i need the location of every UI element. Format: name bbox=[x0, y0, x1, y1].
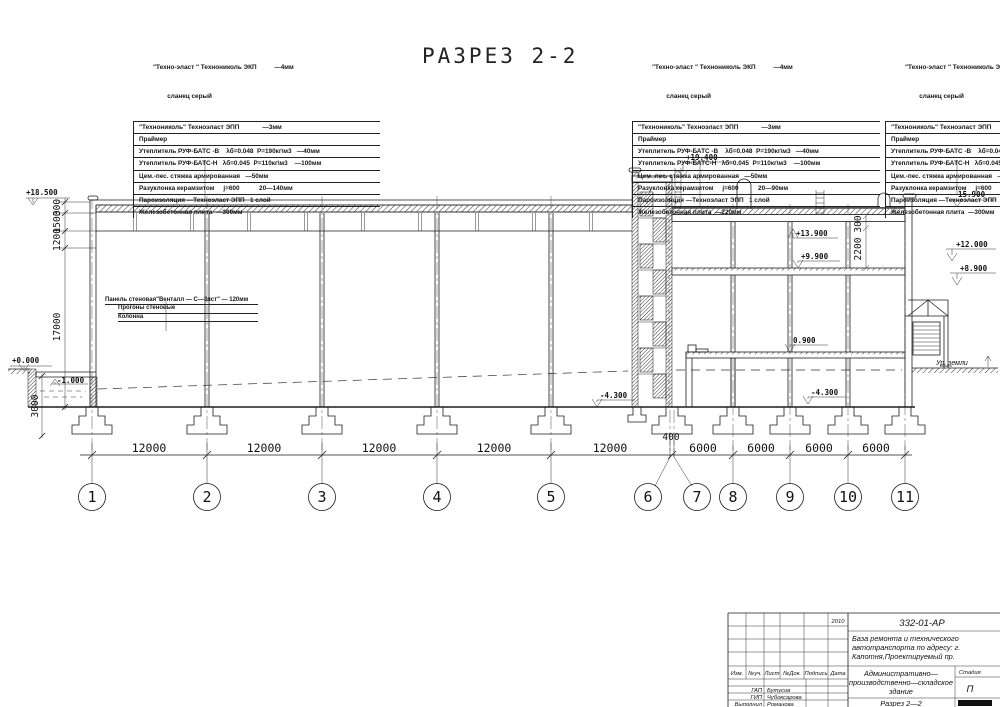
spec-row: Железобетонная плита —300мм bbox=[134, 207, 380, 218]
axis-bubble-11: 11 bbox=[892, 484, 919, 511]
dimension-chain-left: 300 1500 1200 17000 3000 bbox=[30, 198, 96, 439]
spec-row: Цем.-пес. стяжка армированная —50мм bbox=[633, 171, 880, 183]
project-desc-line2: автотранспорта по адресу: г. bbox=[852, 643, 960, 652]
spec-row: Утеплитель РУФ-БАТС -В λб=0.048 Р=190кг\… bbox=[886, 146, 1000, 158]
dim-1200: 1200 bbox=[52, 228, 63, 251]
spec-row: Утеплитель РУФ-БАТС-Н λб=0.045 Р=110кг\м… bbox=[886, 158, 1000, 170]
spec-row: Разуклонка керамзитом j=600 20—140мм bbox=[134, 183, 380, 195]
svg-text:+9.900: +9.900 bbox=[801, 252, 829, 261]
svg-text:+12.000: +12.000 bbox=[956, 240, 988, 249]
spec-row: сланец серый bbox=[905, 92, 1000, 102]
callout-line: Колонна bbox=[118, 314, 258, 322]
project-desc-line1: База ремонта и технического bbox=[852, 634, 959, 643]
dim-12000-2: 12000 bbox=[247, 441, 282, 455]
foundations bbox=[72, 407, 925, 434]
axis-bubble-7: 7 bbox=[684, 484, 711, 511]
stair-flights bbox=[638, 192, 666, 398]
right-columns bbox=[731, 222, 850, 407]
project-desc-line3: Капотня,Проектируемый пр. bbox=[852, 652, 955, 661]
level-mark-13900: +13.900 bbox=[788, 229, 838, 238]
spec-row: Железобетонная плита —220мм bbox=[633, 207, 880, 218]
spec-row: Праймер bbox=[886, 134, 1000, 146]
spec-row: Пароизоляция —Техноэласт ЭПП 1 слой bbox=[134, 195, 380, 207]
col-dok: №Док. bbox=[783, 671, 801, 677]
dim-6000-3: 6000 bbox=[805, 441, 833, 455]
axis-bubble-5: 5 bbox=[538, 484, 565, 511]
wall-panel-callout: Панель стеновая"Венталл — С—3пст" — 120м… bbox=[105, 297, 258, 322]
svg-text:-1.000: -1.000 bbox=[57, 376, 85, 385]
spec-row: Разуклонка керамзитом j=600 20—90мм bbox=[633, 183, 880, 195]
dim-17000: 17000 bbox=[52, 312, 63, 341]
spec-row: Цем.-пес. стяжка армированная —50мм bbox=[134, 171, 380, 183]
titleblock-year: 2010 bbox=[831, 619, 846, 625]
spec-row: Железобетонная плита —300мм bbox=[886, 207, 1000, 218]
spec-row: "Технониколь" Техноэласт ЭПП —3мм bbox=[886, 122, 1000, 134]
level-mark-minus4300-hall: -4.300 bbox=[592, 391, 635, 407]
building-name-line2: производственно—складское bbox=[849, 678, 953, 687]
dim-12000-4: 12000 bbox=[477, 441, 512, 455]
level-mark-18500: +18.500 bbox=[26, 188, 70, 205]
dim-3000: 3000 bbox=[30, 394, 41, 417]
titleblock-doc-number: 332-01-АР bbox=[899, 618, 945, 629]
spec-row: Праймер bbox=[633, 134, 880, 146]
spec-row: Пароизоляция —Техноэласт ЭПП 1 слой bbox=[886, 195, 1000, 207]
floor-curb bbox=[688, 345, 696, 352]
axis-bubble-10: 10 bbox=[835, 484, 862, 511]
spec-row: Цем.-пес. стяжка армированная —50мм bbox=[886, 171, 1000, 183]
col-uch: №уч. bbox=[748, 671, 762, 677]
svg-text:-4.300: -4.300 bbox=[811, 388, 839, 397]
spec-row: "Технониколь" Техноэласт ЭПП —3мм bbox=[134, 122, 380, 134]
roof-spec-table-middle: "Техно-эласт " Технониколь ЭКП —4мм слан… bbox=[632, 44, 880, 218]
col-data: Дата bbox=[829, 671, 846, 677]
basement-wall-left bbox=[686, 352, 692, 407]
dim-12000-1: 12000 bbox=[132, 441, 167, 455]
dim-6000-4: 6000 bbox=[862, 441, 890, 455]
parapet-cap-left bbox=[88, 196, 98, 200]
hall-floor-dashed bbox=[98, 371, 628, 389]
spec-row: сланец серый bbox=[153, 92, 380, 102]
svg-text:-4.300: -4.300 bbox=[600, 391, 628, 400]
ground-hatch-left bbox=[8, 369, 30, 374]
svg-text:10: 10 bbox=[839, 488, 857, 506]
name-gap: Бутусов bbox=[767, 688, 790, 694]
dim-400: 400 bbox=[662, 432, 679, 443]
ground-level-label: Ур. земли bbox=[935, 356, 991, 367]
spec-row: Праймер bbox=[134, 134, 380, 146]
spec-row: "Техно-эласт " Технониколь ЭКП —4мм bbox=[905, 63, 1000, 73]
roof-spec-table-right: "Техно-эласт " Технониколь ЭКП —4мм слан… bbox=[885, 44, 1000, 218]
svg-text:4: 4 bbox=[432, 488, 441, 506]
drawing-sheet: 300 2200 12000 12000 12000 12000 bbox=[0, 0, 1000, 707]
spec-row: Разуклонка керамзитом j=600 20—140мм bbox=[886, 183, 1000, 195]
axis-bubble-3: 3 bbox=[309, 484, 336, 511]
svg-text:0.900: 0.900 bbox=[793, 336, 816, 345]
up-arrow-icon bbox=[985, 356, 991, 367]
col-list: Лист bbox=[764, 671, 780, 677]
building-name-line3: здание bbox=[888, 687, 913, 696]
spec-row: "Технониколь" Техноэласт ЭПП —3мм bbox=[633, 122, 880, 134]
svg-text:5: 5 bbox=[546, 488, 555, 506]
role-gip: ГИП bbox=[750, 695, 762, 701]
svg-text:+0.000: +0.000 bbox=[12, 356, 40, 365]
level-mark-12000: +12.000 bbox=[946, 240, 996, 261]
spec-row: "Техно-эласт " Технониколь ЭКП —4мм bbox=[153, 63, 380, 73]
svg-text:2: 2 bbox=[202, 488, 211, 506]
roof-spec-table-left: "Техно-эласт " Технониколь ЭКП —4мм слан… bbox=[133, 44, 380, 218]
dim-12000-5: 12000 bbox=[593, 441, 628, 455]
dim-12000-3: 12000 bbox=[362, 441, 397, 455]
spec-row: Утеплитель РУФ-БАТС-Н λб=0.045 Р=110кг\м… bbox=[633, 158, 880, 170]
title-block: 2010 332-01-АР База ремонта и техническо… bbox=[728, 613, 1000, 707]
spec-row: сланец серый bbox=[652, 92, 880, 102]
col-podpis: Подпись bbox=[805, 671, 828, 677]
axis-bubble-6: 6 bbox=[635, 484, 662, 511]
name-executor: Романова bbox=[767, 702, 795, 707]
dim-6000-1: 6000 bbox=[689, 441, 717, 455]
axis-bubble-2: 2 bbox=[194, 484, 221, 511]
canopy-truss bbox=[905, 300, 948, 316]
level-mark-8900: +8.900 bbox=[950, 264, 996, 285]
axis-bubble-8: 8 bbox=[720, 484, 747, 511]
spec-row: Пароизоляция —Техноэласт ЭПП 1 слой bbox=[633, 195, 880, 207]
role-gap: ГАП bbox=[751, 688, 762, 694]
svg-text:+18.500: +18.500 bbox=[26, 188, 58, 197]
axis-lines bbox=[92, 196, 905, 457]
callout-line: Панель стеновая"Венталл — С—3пст" — 120м… bbox=[105, 297, 258, 305]
callout-line: Прогоны стеновые bbox=[118, 305, 258, 313]
dim-2200: 2200 bbox=[853, 237, 864, 260]
svg-text:6: 6 bbox=[643, 488, 652, 506]
col-izm: Изм. bbox=[731, 671, 743, 677]
ground-hatch-right bbox=[912, 368, 998, 373]
spec-row: Утеплитель РУФ-БАТС -В λб=0.048 Р=190кг\… bbox=[633, 146, 880, 158]
axis-bubbles: 1 2 3 4 5 6 7 8 9 10 11 bbox=[79, 457, 919, 511]
main-hall bbox=[8, 196, 632, 407]
spec-row: Утеплитель РУФ-БАТС -В λб=0.048 Р=190кг\… bbox=[134, 146, 380, 158]
drawing-title: РАЗРЕЗ 2-2 bbox=[422, 44, 578, 68]
role-executor: Выполнил bbox=[735, 702, 763, 707]
svg-text:+13.900: +13.900 bbox=[796, 229, 828, 238]
svg-text:9: 9 bbox=[785, 488, 794, 506]
sheet-title: Разрез 2—2 bbox=[880, 699, 922, 707]
svg-text:Ур. земли: Ур. земли bbox=[935, 360, 968, 367]
dim-6000-2: 6000 bbox=[747, 441, 775, 455]
titleblock-black-bar bbox=[958, 700, 992, 706]
stage-header: Стадия bbox=[959, 670, 981, 676]
level-mark-minus1000: -1.000 bbox=[50, 376, 88, 386]
building-name-line1: Административно— bbox=[863, 669, 939, 678]
name-gip: Чубоксарова bbox=[767, 695, 803, 701]
level-mark-0900: 0.900 bbox=[785, 336, 828, 352]
svg-text:+8.900: +8.900 bbox=[960, 264, 988, 273]
spec-row: "Техно-эласт " Технониколь ЭКП —4мм bbox=[652, 63, 880, 73]
svg-text:7: 7 bbox=[692, 488, 701, 506]
svg-text:11: 11 bbox=[896, 488, 914, 506]
tower-footing bbox=[628, 407, 646, 422]
axis-bubble-9: 9 bbox=[777, 484, 804, 511]
svg-text:8: 8 bbox=[728, 488, 737, 506]
spec-row: Утеплитель РУФ-БАТС-Н λб=0.045 Р=110кг\м… bbox=[134, 158, 380, 170]
svg-text:3: 3 bbox=[317, 488, 326, 506]
level-mark-9900: +9.900 bbox=[793, 252, 840, 268]
level-mark-minus4300-right: -4.300 bbox=[803, 388, 846, 404]
axis-bubble-4: 4 bbox=[424, 484, 451, 511]
stage-value: П bbox=[967, 684, 974, 695]
svg-text:1: 1 bbox=[87, 488, 96, 506]
dimension-chain-bottom: 12000 12000 12000 12000 12000 400 6000 6… bbox=[80, 432, 912, 462]
axis-bubble-1: 1 bbox=[79, 484, 106, 511]
